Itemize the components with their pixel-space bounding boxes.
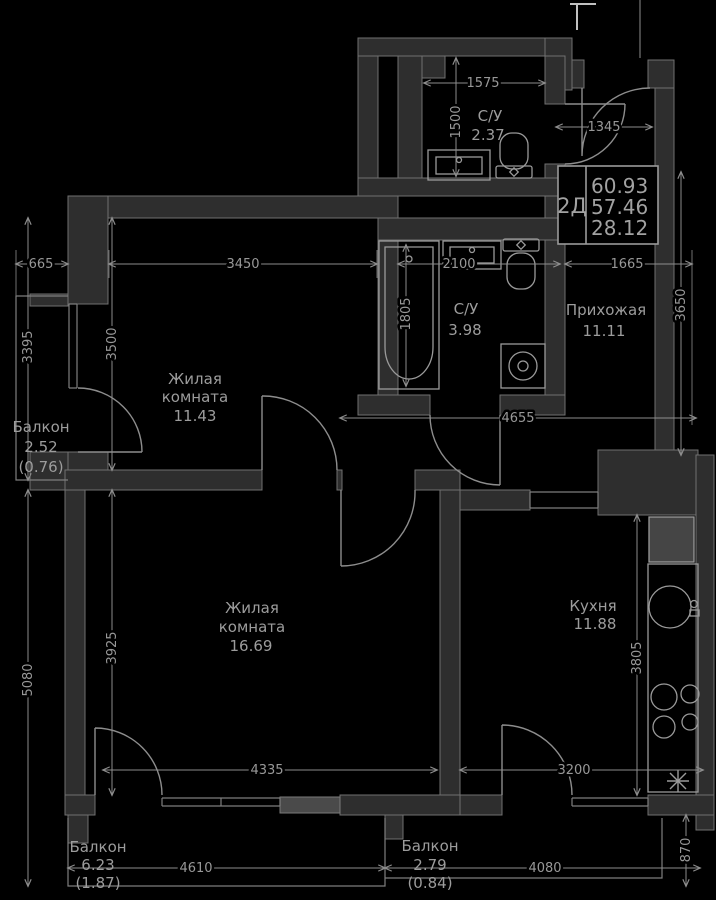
- label-kitchen-name: Кухня: [569, 597, 616, 615]
- fridge: [649, 517, 694, 562]
- dim-balcony-bl-width: 4610: [179, 861, 212, 876]
- dim-balcony-br-height: 870: [679, 838, 694, 863]
- label-bathroom-top-name: С/У: [478, 107, 503, 125]
- label-balcony-bl-name: Балкон: [69, 838, 126, 856]
- dim-bathtub-length: 1805: [399, 297, 414, 330]
- dim-hall-width: 1665: [610, 257, 643, 272]
- label-living-name1: Жилая: [225, 599, 279, 617]
- dim-top-bath-height: 1500: [449, 105, 464, 138]
- label-balcony-left-area: 2.52: [24, 438, 57, 456]
- label-balcony-bl-reduced: (1.87): [75, 874, 120, 892]
- dim-hall-height: 3650: [674, 288, 689, 321]
- dim-balcony-left-height: 3395: [21, 330, 36, 363]
- label-living-name2: комната: [219, 618, 285, 636]
- dim-corridor-width: 4655: [501, 411, 534, 426]
- label-kitchen-area: 11.88: [574, 615, 617, 633]
- dim-bedroom-width: 3450: [226, 257, 259, 272]
- label-bathroom-top-area: 2.37: [471, 126, 504, 144]
- dim-kitchen-height: 3805: [630, 641, 645, 674]
- dim-balcony-br-width: 4080: [528, 861, 561, 876]
- dim-balcony-left-width: 665: [29, 257, 54, 272]
- vent-asterisk-icon: [667, 770, 689, 792]
- dim-kitchen-width: 3200: [557, 763, 590, 778]
- dim-top-bath-width: 1575: [466, 76, 499, 91]
- label-bathroom-main-name: С/У: [454, 300, 479, 318]
- label-balcony-bl-area: 6.23: [81, 856, 114, 874]
- label-balcony-left-name: Балкон: [12, 418, 69, 436]
- label-living-area: 16.69: [230, 637, 273, 655]
- spandrel-panel: [280, 797, 340, 813]
- label-hallway-area: 11.11: [583, 322, 626, 340]
- label-bedroom-area: 11.43: [174, 407, 217, 425]
- floor-plan-drawing: 1575 1500 1345 665 3450 2100 1665 3395 3…: [0, 0, 716, 900]
- dim-living-width: 4335: [250, 763, 283, 778]
- label-hallway-name: Прихожая: [566, 301, 646, 319]
- label-balcony-br-reduced: (0.84): [407, 874, 452, 892]
- info-area-rooms: 28.12: [591, 216, 648, 240]
- floor-plan-canvas: 1575 1500 1345 665 3450 2100 1665 3395 3…: [0, 0, 716, 900]
- label-bedroom-name2: комната: [162, 388, 228, 406]
- label-balcony-br-name: Балкон: [401, 837, 458, 855]
- info-box: 2Д 60.93 57.46 28.12: [557, 166, 658, 244]
- dim-entry-width: 1345: [587, 120, 620, 135]
- info-plan-code: 2Д: [557, 194, 587, 218]
- label-balcony-br-area: 2.79: [413, 856, 446, 874]
- dim-bedroom-height: 3500: [105, 327, 120, 360]
- label-balcony-left-reduced: (0.76): [18, 458, 63, 476]
- label-bathroom-main-area: 3.98: [448, 321, 481, 339]
- dim-living-height: 3925: [105, 631, 120, 664]
- dim-left-lower-height: 5080: [21, 663, 36, 696]
- label-bedroom-name1: Жилая: [168, 370, 222, 388]
- dim-bathroom-width: 2100: [442, 257, 475, 272]
